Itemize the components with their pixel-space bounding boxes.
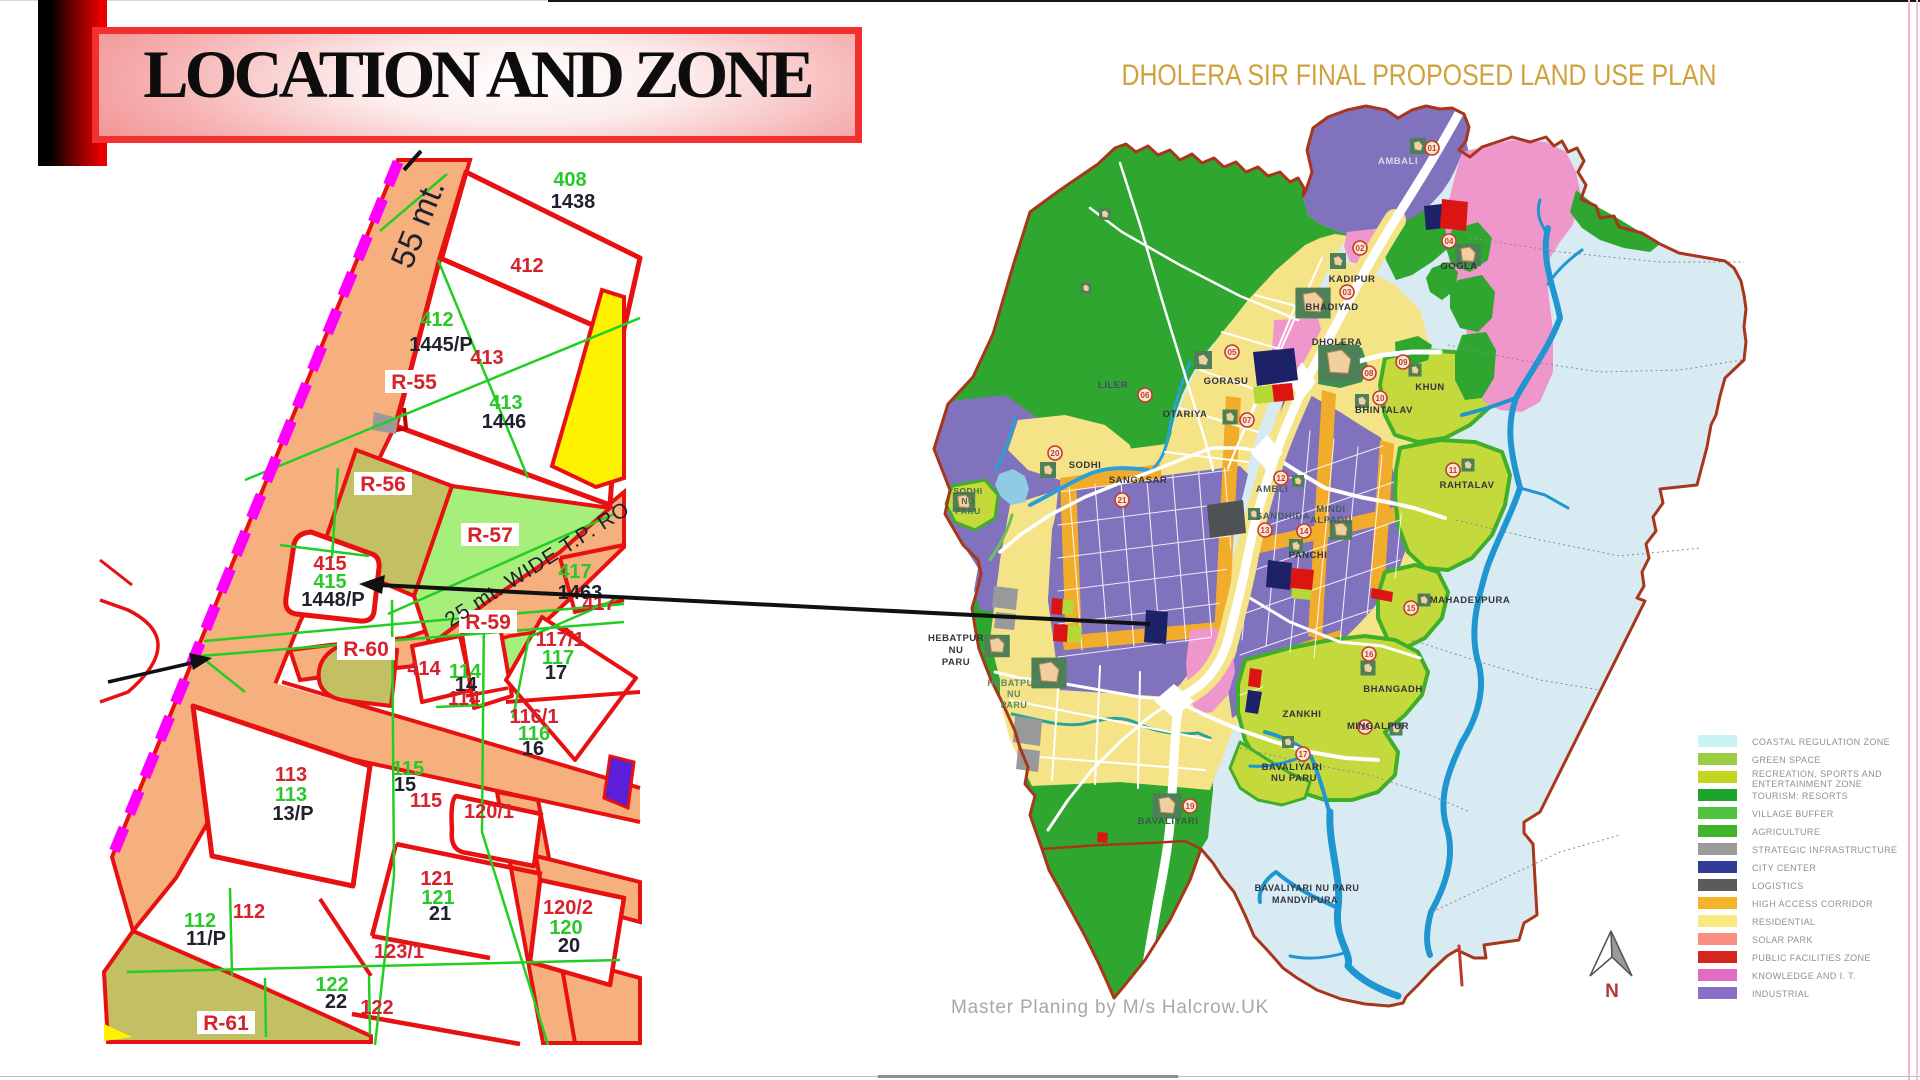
svg-text:KHUN: KHUN: [1415, 382, 1444, 393]
svg-text:TOURISM: RESORTS: TOURISM: RESORTS: [1752, 791, 1848, 801]
svg-text:06: 06: [1141, 391, 1150, 400]
svg-text:1446: 1446: [482, 411, 527, 433]
svg-text:BAVALIYARI NU PARU: BAVALIYARI NU PARU: [1255, 883, 1360, 893]
svg-text:BAVALIYARI: BAVALIYARI: [1262, 762, 1323, 773]
svg-text:22: 22: [325, 991, 347, 1013]
svg-text:21: 21: [1118, 496, 1127, 505]
svg-text:1438: 1438: [551, 191, 596, 213]
svg-text:HIGH ACCESS CORRIDOR: HIGH ACCESS CORRIDOR: [1752, 899, 1873, 909]
svg-text:N: N: [1605, 981, 1619, 1002]
svg-text:21: 21: [429, 903, 451, 925]
svg-text:RECREATION, SPORTS AND: RECREATION, SPORTS AND: [1752, 769, 1882, 779]
svg-text:R-57: R-57: [467, 524, 513, 547]
svg-text:414: 414: [407, 658, 441, 680]
svg-text:03: 03: [1343, 288, 1352, 297]
svg-text:AMBLI: AMBLI: [1256, 484, 1289, 495]
svg-text:SANGASAR: SANGASAR: [1109, 475, 1167, 486]
svg-text:R-55: R-55: [391, 371, 437, 394]
svg-text:NU: NU: [949, 645, 964, 656]
svg-text:HEBATPUR: HEBATPUR: [928, 633, 984, 644]
svg-text:07: 07: [1243, 416, 1252, 425]
svg-text:11: 11: [1449, 466, 1458, 475]
svg-text:BAVALIYARI: BAVALIYARI: [1138, 816, 1199, 827]
svg-text:KNOWLEDGE AND I. T.: KNOWLEDGE AND I. T.: [1752, 971, 1856, 981]
svg-text:120/2: 120/2: [543, 897, 593, 919]
svg-text:KADIPUR: KADIPUR: [1329, 274, 1376, 285]
svg-text:PARU: PARU: [1001, 700, 1028, 710]
svg-text:MAHADEVPURA: MAHADEVPURA: [1430, 595, 1510, 606]
svg-text:ALPADU: ALPADU: [1310, 515, 1352, 526]
svg-text:Master Planing by M/s Halcrow.: Master Planing by M/s Halcrow.UK: [951, 997, 1269, 1018]
svg-text:122: 122: [360, 997, 393, 1019]
svg-text:412: 412: [510, 255, 543, 277]
svg-text:14: 14: [1300, 527, 1309, 536]
svg-text:MANDVIPURA: MANDVIPURA: [1272, 895, 1338, 905]
svg-text:16: 16: [1365, 650, 1374, 659]
svg-text:PARU: PARU: [942, 657, 970, 668]
svg-text:BHINTALAV: BHINTALAV: [1355, 405, 1413, 416]
svg-text:114: 114: [448, 688, 481, 710]
svg-text:MINDI: MINDI: [1316, 504, 1345, 515]
svg-text:1445/P: 1445/P: [409, 334, 472, 356]
svg-text:GORASU: GORASU: [1204, 376, 1249, 387]
svg-text:NU: NU: [961, 496, 974, 506]
svg-text:SODHI: SODHI: [1069, 460, 1102, 471]
svg-text:AMBALI: AMBALI: [1378, 156, 1418, 167]
svg-text:NU PARU: NU PARU: [1271, 773, 1317, 784]
svg-text:AGRICULTURE: AGRICULTURE: [1752, 827, 1820, 837]
svg-text:DHOLERA: DHOLERA: [1312, 337, 1362, 348]
svg-text:11/P: 11/P: [186, 928, 226, 950]
svg-text:PANCHI: PANCHI: [1289, 550, 1328, 561]
svg-text:INDUSTRIAL: INDUSTRIAL: [1752, 989, 1810, 999]
svg-text:SANDHIDA: SANDHIDA: [1256, 511, 1310, 522]
svg-text:08: 08: [1365, 369, 1374, 378]
svg-text:SOLAR PARK: SOLAR PARK: [1752, 935, 1813, 945]
svg-text:02: 02: [1356, 244, 1365, 253]
svg-text:113: 113: [275, 764, 307, 786]
svg-text:HEBATPUR: HEBATPUR: [987, 678, 1040, 688]
svg-text:17: 17: [1299, 750, 1308, 759]
svg-text:STRATEGIC INFRASTRUCTURE: STRATEGIC INFRASTRUCTURE: [1752, 845, 1897, 855]
svg-text:NU: NU: [1007, 689, 1021, 699]
svg-text:413: 413: [470, 347, 503, 369]
svg-text:13: 13: [1261, 526, 1270, 535]
svg-text:12: 12: [1277, 474, 1286, 483]
svg-text:01: 01: [1428, 144, 1437, 153]
svg-text:OTARIYA: OTARIYA: [1163, 409, 1208, 420]
svg-text:09: 09: [1399, 358, 1408, 367]
svg-text:DHOLERA SIR FINAL PROPOSED LAN: DHOLERA SIR FINAL PROPOSED LAND USE PLAN: [1122, 59, 1717, 92]
svg-text:20: 20: [1051, 449, 1060, 458]
svg-text:10: 10: [1376, 394, 1385, 403]
svg-text:ZANKHI: ZANKHI: [1283, 709, 1322, 720]
svg-text:SODHI: SODHI: [953, 486, 982, 496]
svg-text:ENTERTAINMENT ZONE: ENTERTAINMENT ZONE: [1752, 779, 1862, 789]
svg-text:05: 05: [1228, 348, 1237, 357]
svg-text:PUBLIC FACILITIES ZONE: PUBLIC FACILITIES ZONE: [1752, 953, 1871, 963]
svg-text:123/1: 123/1: [374, 941, 424, 963]
svg-text:MINGALPUR: MINGALPUR: [1347, 721, 1409, 732]
svg-text:R-60: R-60: [343, 638, 389, 661]
svg-text:16: 16: [522, 738, 544, 760]
svg-text:1448/P: 1448/P: [301, 589, 364, 611]
svg-text:408: 408: [553, 169, 586, 191]
svg-text:19: 19: [1186, 802, 1195, 811]
svg-text:R-61: R-61: [203, 1012, 249, 1035]
svg-text:VILLAGE BUFFER: VILLAGE BUFFER: [1752, 809, 1834, 819]
svg-text:PARU: PARU: [955, 506, 980, 516]
svg-text:412: 412: [420, 309, 453, 331]
svg-text:13/P: 13/P: [272, 803, 313, 825]
svg-text:120/1: 120/1: [464, 801, 514, 823]
svg-text:CITY CENTER: CITY CENTER: [1752, 863, 1816, 873]
svg-text:20: 20: [558, 935, 580, 957]
svg-text:GREEN SPACE: GREEN SPACE: [1752, 755, 1821, 765]
svg-text:17: 17: [545, 662, 567, 684]
svg-text:GOGLA: GOGLA: [1440, 261, 1477, 272]
svg-text:04: 04: [1445, 237, 1454, 246]
svg-text:LOGISTICS: LOGISTICS: [1752, 881, 1804, 891]
svg-text:15: 15: [1407, 604, 1416, 613]
svg-text:RAHTALAV: RAHTALAV: [1440, 480, 1495, 491]
svg-text:COASTAL REGULATION ZONE: COASTAL REGULATION ZONE: [1752, 737, 1890, 747]
svg-text:112: 112: [233, 901, 265, 923]
svg-text:RESIDENTIAL: RESIDENTIAL: [1752, 917, 1815, 927]
svg-text:BHADIYAD: BHADIYAD: [1305, 302, 1358, 313]
svg-text:115: 115: [410, 790, 442, 812]
svg-text:R-56: R-56: [360, 473, 406, 496]
svg-text:BHANGADH: BHANGADH: [1363, 684, 1422, 695]
svg-text:417: 417: [558, 561, 591, 583]
svg-text:LILER: LILER: [1098, 380, 1128, 391]
